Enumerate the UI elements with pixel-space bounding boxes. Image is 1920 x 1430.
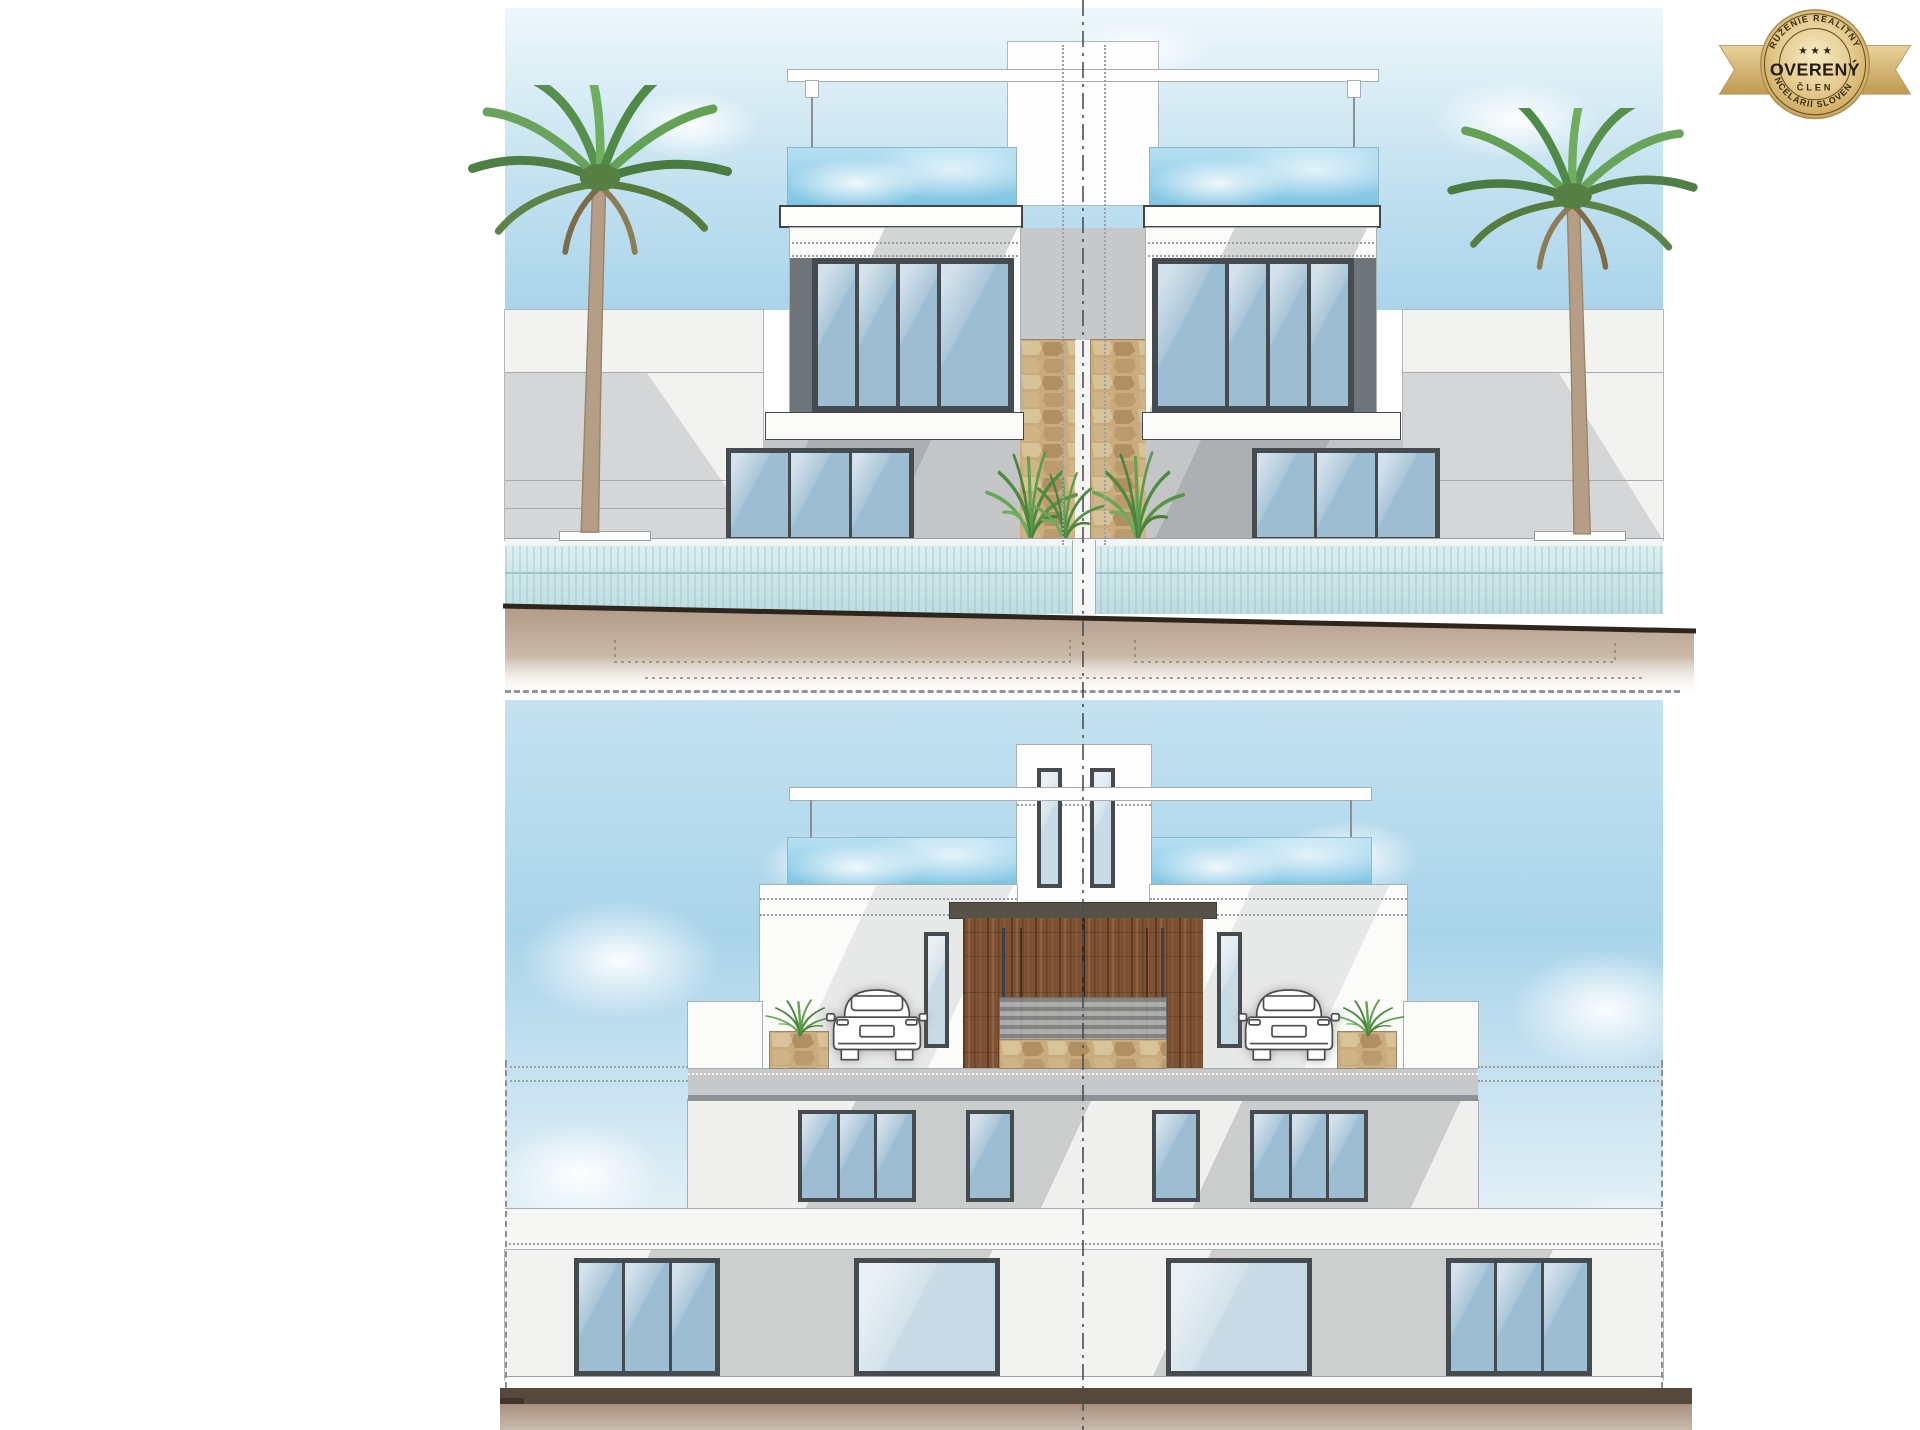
certification-badge: ZDRUŽENIE REALITNÝCH KANCELÁRIÍ SLOVENSK… — [1712, 4, 1918, 130]
window-pane — [1378, 453, 1435, 537]
window-pane — [928, 936, 945, 1044]
lower-window-triple-left — [574, 1258, 720, 1376]
railing-post — [810, 800, 812, 838]
window-pane — [859, 1263, 995, 1371]
middle-window-narrow-left — [966, 1110, 1014, 1202]
window-pane — [900, 264, 937, 406]
window-pane — [1257, 453, 1314, 537]
guide-dotted — [760, 898, 1017, 900]
window-pane — [1317, 453, 1374, 537]
ground-slope — [495, 598, 1705, 700]
palm-tree-right — [1435, 108, 1710, 548]
lower-window-triple-right — [1446, 1258, 1592, 1376]
window-pane — [859, 264, 896, 406]
window-pane — [1156, 1114, 1196, 1198]
boundary-line-right — [1661, 1060, 1663, 1388]
badge-subtitle: ČLEN — [1797, 81, 1834, 92]
railing-post-block — [1348, 81, 1360, 97]
drawing-separator-line — [505, 690, 1680, 693]
architectural-drawing: ZDRUŽENIE REALITNÝCH KANCELÁRIÍ SLOVENSK… — [0, 0, 1920, 1430]
tower-window-left — [1037, 768, 1062, 888]
roof-fascia-left — [779, 205, 1023, 228]
window-pane — [1171, 1263, 1307, 1371]
window-pane — [877, 1114, 912, 1198]
ground-door-left — [726, 448, 914, 542]
roof-glass-balustrade-left — [788, 148, 1016, 205]
guide-dotted — [1478, 1066, 1663, 1068]
guide-dotted — [790, 242, 1020, 244]
center-property-line — [1080, 0, 1086, 1430]
window-pane — [1158, 264, 1225, 406]
guide-dotted — [505, 1080, 688, 1082]
plant — [1012, 450, 1117, 547]
wall-dark-strip — [790, 258, 812, 412]
window-pane — [941, 264, 1008, 406]
window-pane — [818, 264, 855, 406]
window-pane — [1451, 1263, 1494, 1371]
street-glass-balustrade-left — [788, 838, 1016, 885]
roof-glass-balustrade-right — [1150, 148, 1378, 205]
railing-post — [1350, 800, 1352, 838]
guide-dotted-vertical — [1104, 45, 1106, 545]
window-pane — [840, 1114, 875, 1198]
window-pane — [970, 1114, 1010, 1198]
lower-window-large-right — [1166, 1258, 1312, 1376]
window-pane — [1254, 1114, 1289, 1198]
window-pane — [625, 1263, 668, 1371]
cloud — [1510, 950, 1700, 1070]
bottom-elevation — [0, 700, 1920, 1430]
railing-post-block — [806, 81, 818, 97]
guide-dotted — [1478, 1080, 1663, 1082]
guide-dotted — [1150, 898, 1407, 900]
boundary-line-left — [505, 1060, 507, 1388]
window-pane — [802, 1114, 837, 1198]
middle-window-narrow-right — [1152, 1110, 1200, 1202]
ground-strip-dark — [500, 1388, 1692, 1404]
roof-fascia-right — [1143, 205, 1381, 228]
ground-earth — [500, 1404, 1692, 1430]
tower-window-right — [1090, 768, 1115, 888]
palm-tree-left — [455, 85, 745, 547]
window-pane — [1329, 1114, 1364, 1198]
railing-post — [811, 97, 813, 148]
top-elevation — [0, 0, 1920, 700]
window-pane — [1229, 264, 1266, 406]
guide-dotted — [1146, 242, 1376, 244]
wall-dark-strip — [1354, 258, 1376, 412]
lower-window-large-left — [854, 1258, 1000, 1376]
parapet-left — [688, 1002, 762, 1068]
window-pane — [852, 453, 909, 537]
railing-post — [1353, 97, 1355, 148]
middle-window-triple-right — [1250, 1110, 1368, 1202]
car-left — [826, 978, 928, 1070]
guide-dotted — [505, 1066, 688, 1068]
guide-dotted — [1146, 255, 1376, 257]
badge-stars: ★ ★ ★ — [1798, 46, 1831, 57]
upper-window-left — [812, 258, 1014, 412]
ground-door-right — [1252, 448, 1440, 542]
middle-window-triple-left — [798, 1110, 916, 1202]
window-pane — [1544, 1263, 1587, 1371]
window-pane — [579, 1263, 622, 1371]
window-pane — [1292, 1114, 1327, 1198]
guide-dotted-vertical — [1062, 45, 1064, 545]
window-pane — [672, 1263, 715, 1371]
window-pane — [791, 453, 848, 537]
window-pane — [1497, 1263, 1540, 1371]
street-glass-balustrade-right — [1152, 838, 1371, 885]
window-pane — [1311, 264, 1348, 406]
window-pane — [1270, 264, 1307, 406]
guide-dotted — [790, 255, 1020, 257]
window-pane — [1221, 936, 1238, 1044]
upper-window-right — [1152, 258, 1354, 412]
car-right — [1238, 978, 1340, 1070]
badge-title: OVERENÝ — [1770, 58, 1860, 79]
